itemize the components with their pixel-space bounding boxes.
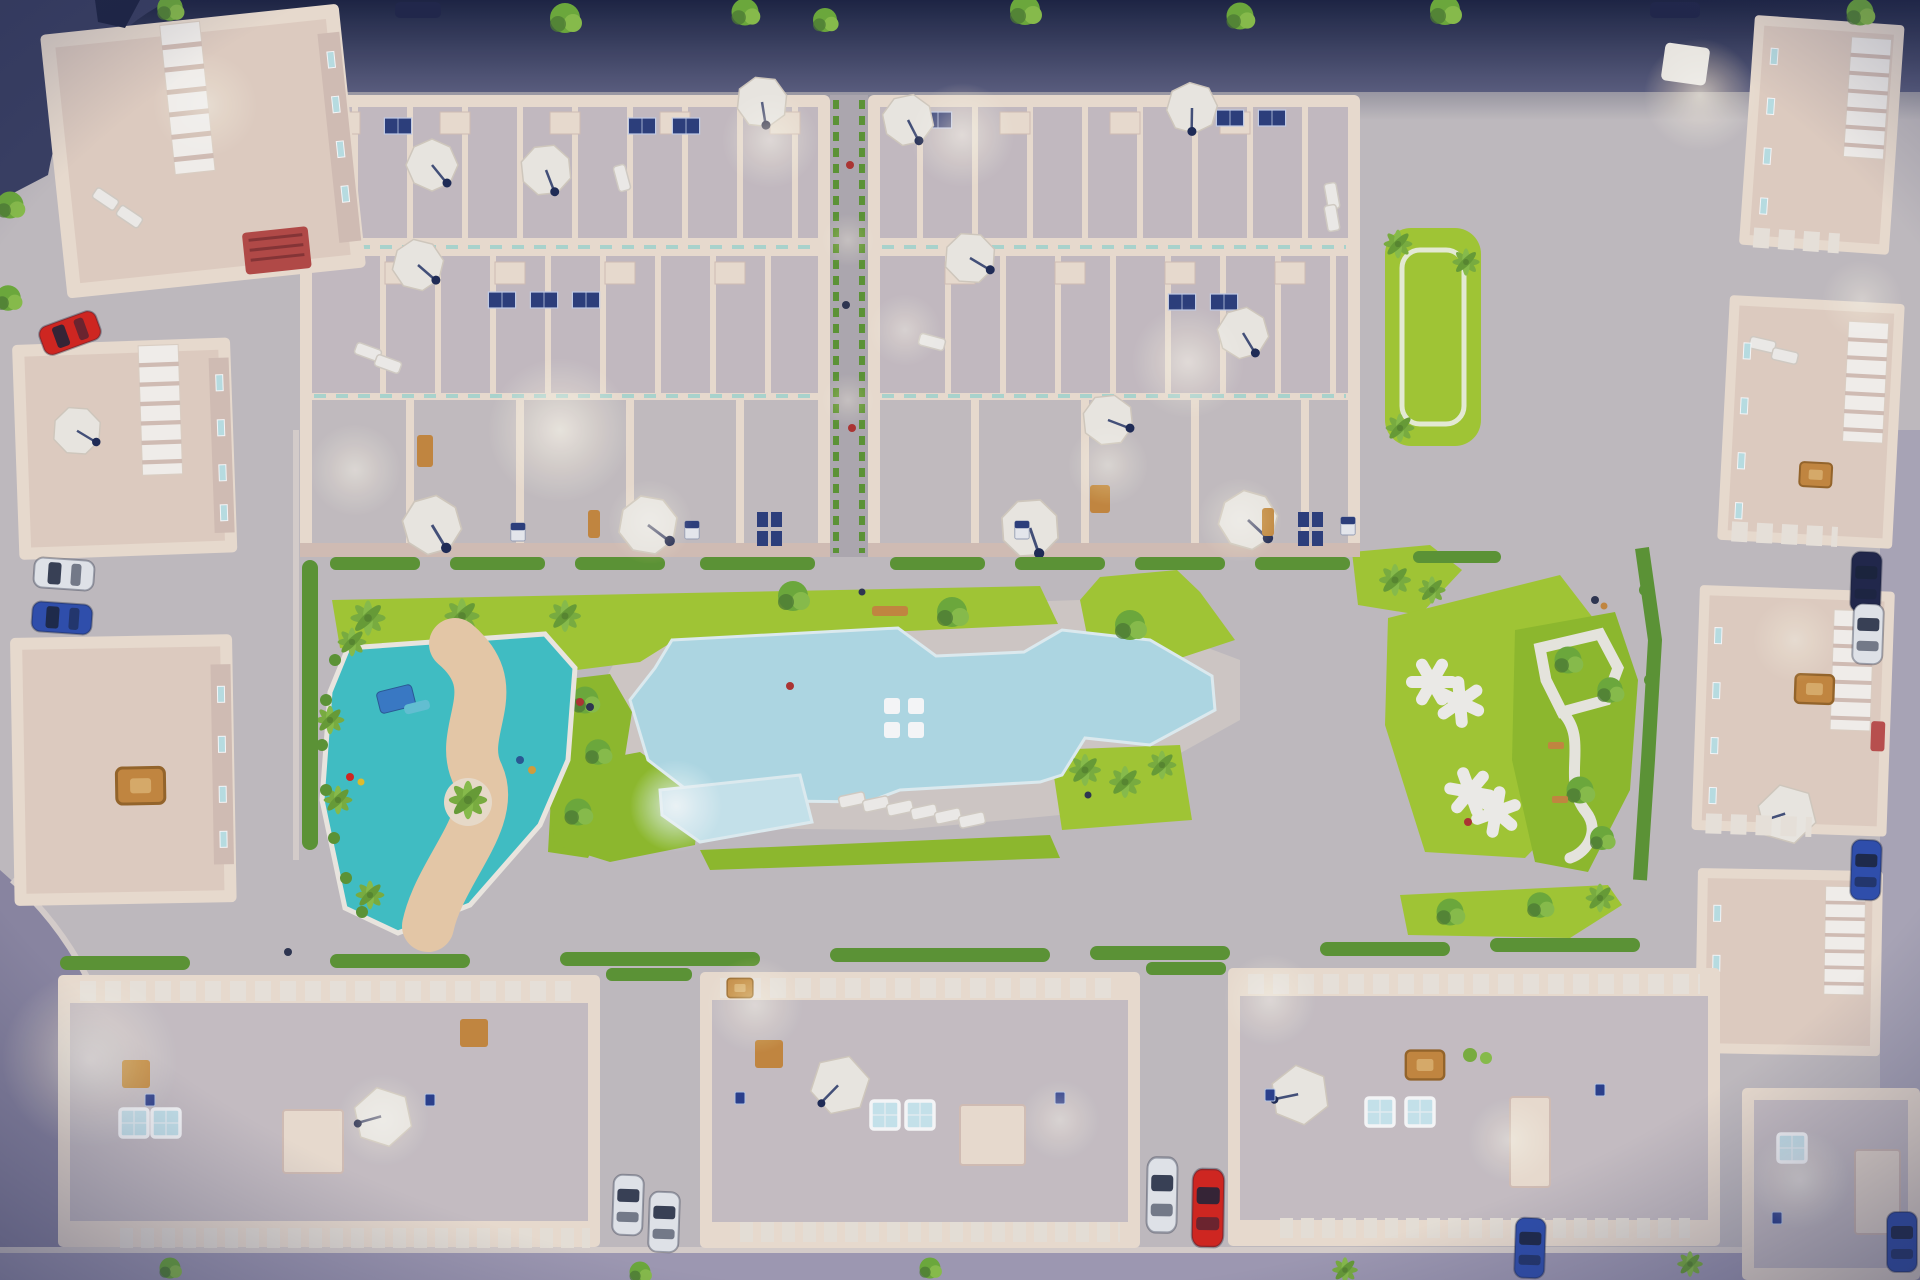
scene-canvas [0, 0, 1920, 1280]
vignette [0, 0, 1920, 1280]
aerial-render [0, 0, 1920, 1280]
